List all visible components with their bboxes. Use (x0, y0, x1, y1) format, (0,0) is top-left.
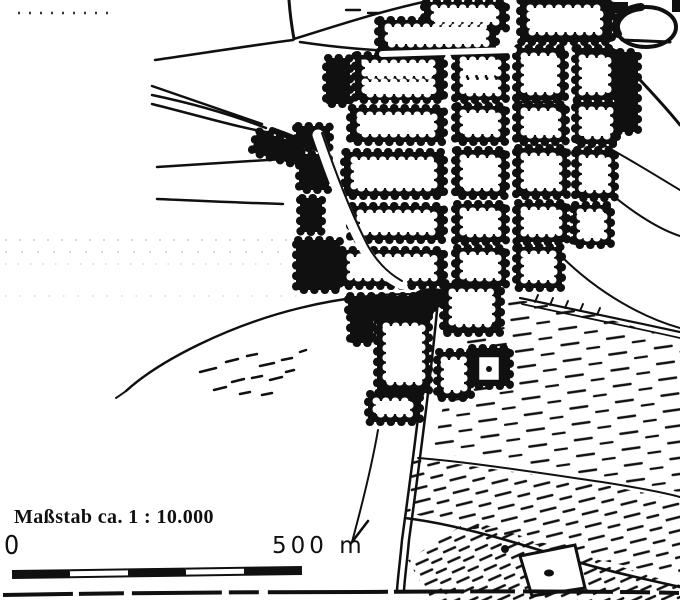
farm-detail (478, 356, 500, 381)
scan-noise-speckles (5, 240, 330, 296)
scale-bar-segment (12, 569, 70, 579)
scale-bar-segment (186, 567, 244, 577)
map-page: Maßstab ca. 1 : 10.000 0 500 m (0, 0, 680, 600)
scale-bar-segment (128, 568, 186, 578)
scale-end-label: 500 m (272, 533, 366, 559)
pond (612, 0, 680, 47)
field-dash-cluster (200, 350, 306, 395)
scale-bar-segment (70, 568, 128, 578)
scale-start-label: 0 (4, 531, 19, 561)
scale-caption: Maßstab ca. 1 : 10.000 (14, 506, 214, 529)
scale-bar-segment (244, 566, 302, 576)
